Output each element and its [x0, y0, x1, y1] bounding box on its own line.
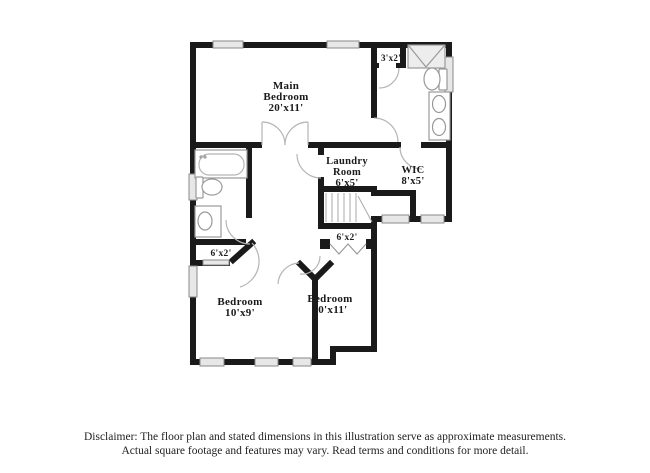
window-bottom-1 — [200, 358, 224, 366]
wall-notch-horizontal — [330, 346, 377, 352]
closet-left-slider — [203, 260, 229, 265]
wall-bath-wic-l — [371, 142, 401, 148]
wall-bath-wic-r — [421, 142, 452, 148]
vanity-left-icon — [195, 206, 221, 237]
label-bedroom-right: Bedroom 10'x11' — [307, 293, 352, 316]
wall-wic-step-v — [410, 190, 416, 222]
wall-closet3x2-stub-l — [371, 63, 379, 68]
arc-main-double-right — [285, 122, 308, 145]
wall-between-bedrooms — [312, 277, 318, 359]
closet-mid-bifold-doors — [330, 244, 366, 254]
wall-mainbedroom-bath — [371, 42, 377, 118]
arc-main-double-left — [262, 122, 285, 145]
door-leaf-hall-left — [300, 264, 315, 279]
floor-plan-page: Main Bedroom 20'x11' 3'x2' Laundry Room … — [0, 0, 650, 473]
wall-wic-step-h — [371, 190, 416, 196]
label-laundry-3: 6'x5' — [335, 178, 358, 189]
staircase — [326, 193, 372, 222]
wall-hall-top-r — [308, 142, 374, 148]
door-leaf-bedroom-left — [233, 243, 252, 260]
label-laundry-1: Laundry — [326, 156, 368, 167]
arc-bath-suite-door — [374, 118, 398, 142]
toilet-right-icon — [424, 68, 447, 90]
label-main-bedroom-3: 20'x11' — [268, 102, 303, 114]
label-bedroom-left: Bedroom 10'x9' — [217, 296, 262, 319]
window-bottom-2 — [255, 358, 278, 366]
wall-closetmid-stub-l — [320, 239, 330, 249]
bathtub-icon — [195, 150, 247, 178]
wall-closetleft-top — [190, 239, 246, 245]
label-laundry-room: Laundry Room 6'x5' — [326, 156, 368, 189]
window-wic-1 — [382, 215, 409, 223]
wall-laundry-left-a — [318, 142, 324, 155]
shower-icon — [408, 45, 445, 68]
label-main-bedroom: Main Bedroom 20'x11' — [263, 80, 308, 114]
disclaimer-line-1: Disclaimer: The floor plan and stated di… — [0, 430, 650, 444]
arc-closet3x2-door — [379, 68, 399, 88]
double-vanity-icon — [429, 92, 450, 140]
window-bottom-3 — [293, 358, 311, 366]
stairs-break-line — [358, 196, 372, 222]
disclaimer-text: Disclaimer: The floor plan and stated di… — [0, 430, 650, 458]
wall-closet3x2-stub-r — [396, 63, 406, 68]
window-wic-2 — [421, 215, 444, 223]
arc-laundry-door — [297, 154, 321, 178]
label-closet-left: 6'x2' — [210, 249, 231, 259]
label-wic: WIC 8'x5' — [401, 165, 424, 187]
arc-hall-door-left — [278, 263, 299, 284]
window-top-2 — [327, 41, 359, 48]
wall-left — [190, 42, 196, 365]
label-bedroom-right-2: 10'x11' — [312, 304, 347, 316]
label-closet-middle: 6'x2' — [336, 233, 357, 243]
wall-closetmid-stub-r — [366, 239, 377, 249]
label-laundry-2: Room — [333, 167, 361, 178]
floor-plan-drawing: Main Bedroom 20'x11' 3'x2' Laundry Room … — [0, 0, 650, 473]
wall-stairs-bottom — [318, 223, 377, 229]
label-bedroom-left-2: 10'x9' — [225, 307, 255, 319]
label-closet-3x2: 3'x2' — [381, 53, 401, 63]
disclaimer-line-2: Actual square footage and features may v… — [0, 444, 650, 458]
label-wic-2: 8'x5' — [401, 176, 424, 187]
window-left-bedroom — [189, 266, 197, 297]
toilet-left-icon — [196, 177, 222, 198]
label-wic-1: WIC — [401, 165, 424, 176]
window-top-1 — [213, 41, 243, 48]
